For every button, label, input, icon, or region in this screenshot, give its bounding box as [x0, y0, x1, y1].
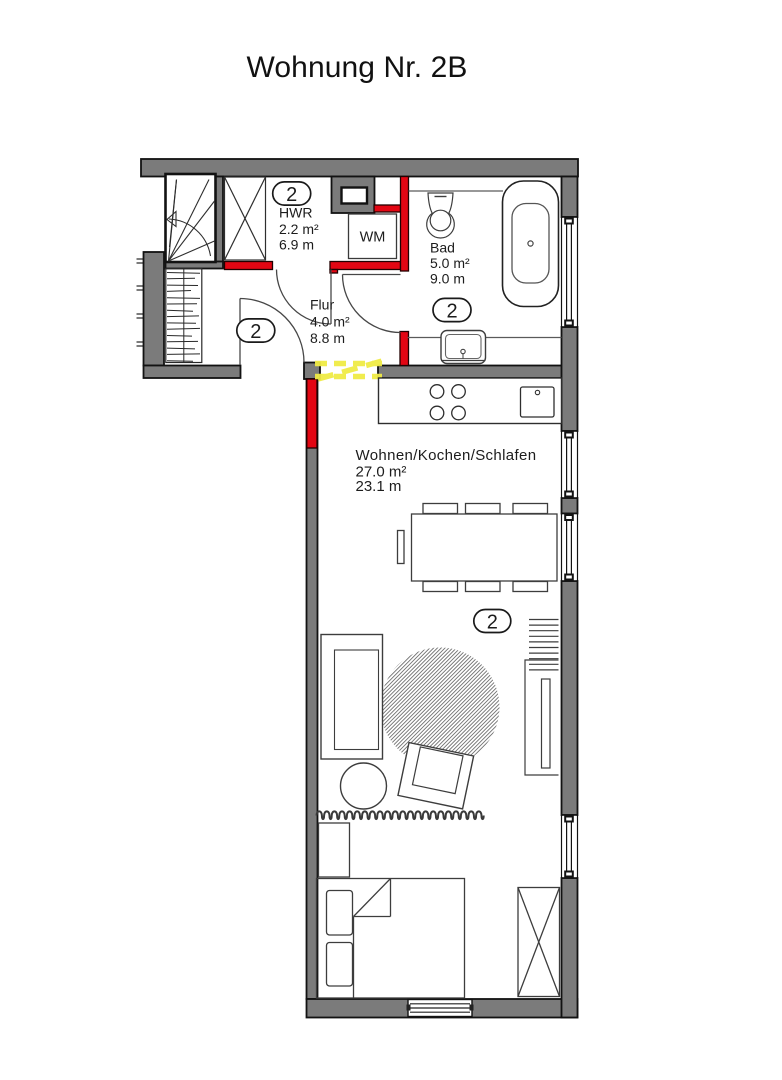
- svg-text:5.0 m²: 5.0 m²: [430, 255, 470, 271]
- svg-text:Bad: Bad: [430, 240, 455, 256]
- svg-text:WM: WM: [360, 230, 386, 246]
- svg-text:4.0 m²: 4.0 m²: [310, 314, 350, 330]
- svg-text:8.8 m: 8.8 m: [310, 330, 345, 346]
- svg-text:2: 2: [286, 184, 297, 206]
- svg-text:Wohnen/Kochen/Schlafen: Wohnen/Kochen/Schlafen: [356, 447, 537, 464]
- svg-text:2: 2: [487, 611, 498, 633]
- svg-text:9.0 m: 9.0 m: [430, 271, 465, 287]
- svg-text:Wohnung Nr. 2B: Wohnung Nr. 2B: [247, 51, 468, 84]
- svg-text:2: 2: [250, 321, 261, 343]
- svg-text:23.1 m: 23.1 m: [356, 478, 402, 495]
- svg-text:HWR: HWR: [279, 205, 312, 221]
- svg-text:2: 2: [446, 300, 457, 322]
- svg-text:6.9 m: 6.9 m: [279, 237, 314, 253]
- svg-text:Flur: Flur: [310, 297, 334, 313]
- svg-text:2.2 m²: 2.2 m²: [279, 221, 319, 237]
